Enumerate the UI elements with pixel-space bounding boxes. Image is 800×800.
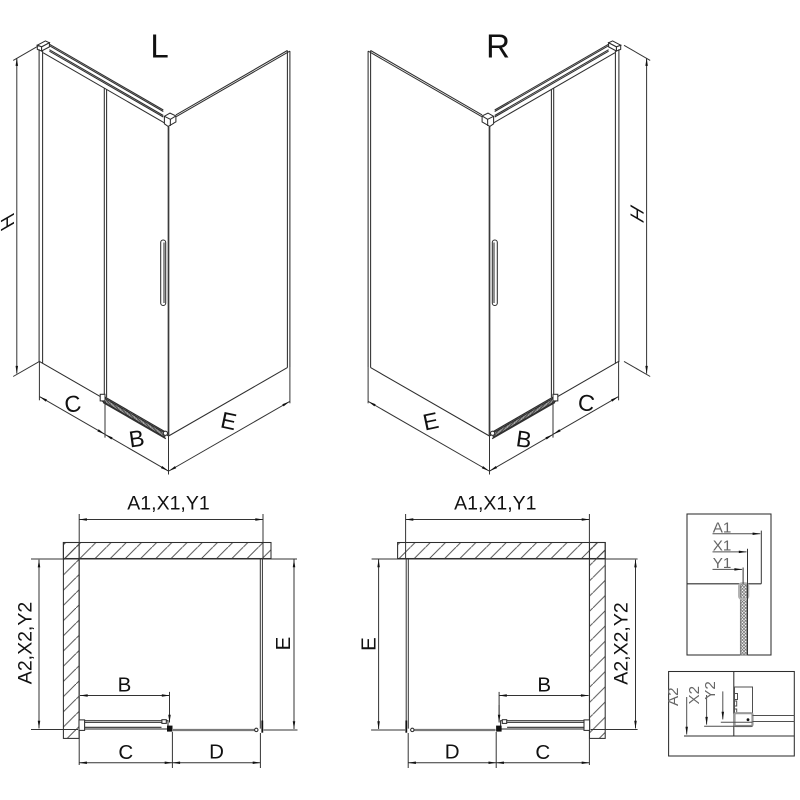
svg-text:C: C [535,741,550,764]
svg-text:B: B [118,674,132,697]
svg-text:X2: X2 [686,686,703,705]
svg-text:D: D [209,741,224,764]
svg-text:R: R [486,28,510,65]
svg-text:C: C [118,741,133,764]
svg-text:A2,X2,Y2: A2,X2,Y2 [611,602,633,684]
svg-text:L: L [150,28,168,65]
svg-text:B: B [537,674,551,697]
svg-text:E: E [358,637,381,651]
svg-text:A2,X2,Y2: A2,X2,Y2 [14,602,36,684]
svg-text:A1,X1,Y1: A1,X1,Y1 [127,493,209,515]
svg-text:D: D [445,741,460,764]
svg-text:E: E [272,637,295,651]
svg-text:A1,X1,Y1: A1,X1,Y1 [454,493,536,515]
svg-text:Y2: Y2 [702,681,719,700]
svg-text:A2: A2 [665,687,682,706]
